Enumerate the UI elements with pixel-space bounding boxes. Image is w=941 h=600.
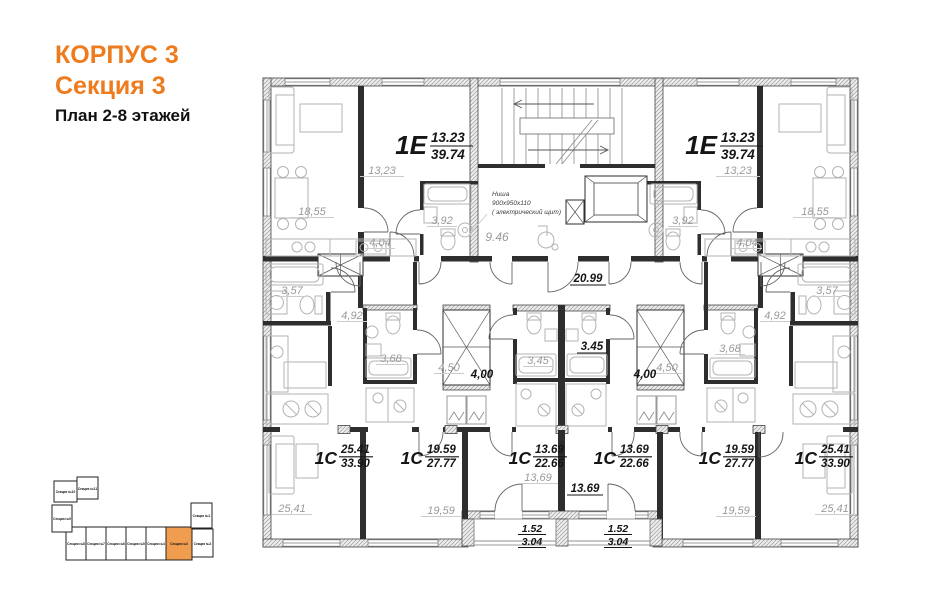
sink-icon — [366, 344, 381, 356]
room-area-label: 4,50 — [656, 362, 678, 374]
toilet-icon — [799, 296, 821, 314]
apartment-total-area: 33.90 — [341, 458, 370, 470]
minimap-section-label: Секция №7 — [87, 542, 105, 546]
balcony-area-num: 1.52 — [522, 523, 543, 535]
apartment-living-area: 13.69 — [535, 444, 564, 456]
toilet-icon — [582, 313, 596, 334]
window — [851, 168, 857, 216]
room-area-label: 13.69 — [571, 483, 600, 495]
lobby-area-label: 9.46 — [485, 230, 509, 244]
room-area-label: 4,00 — [633, 369, 657, 381]
kitchen-counter — [266, 239, 416, 256]
room-area-label: 3,68 — [380, 353, 402, 365]
room-area-label: 25,41 — [820, 503, 849, 515]
window — [522, 512, 549, 518]
elevator-icon — [585, 176, 647, 222]
apartment-living-area: 19.59 — [427, 444, 456, 456]
balcony-area-den: 3.04 — [522, 536, 543, 548]
sofa-icon — [269, 436, 294, 494]
apartment-type: 1С — [795, 448, 818, 468]
apartment-label-bottom-4: 1С 13.69 22.66 — [594, 444, 652, 470]
corridor-shaft-left — [318, 254, 363, 276]
apartment-total-area: 22.66 — [619, 458, 649, 470]
minimap: Секция №8 Секция №7 Секция №6 Секция №5 … — [52, 477, 213, 560]
water-heater-icon — [743, 326, 755, 338]
apartment-living-area: 13.23 — [721, 130, 755, 145]
room-area-label: 4,50 — [438, 362, 460, 374]
minimap-section-label: Секция №9 — [53, 517, 71, 521]
apartment-label-bottom-5: 1С 19.59 27.77 — [699, 444, 757, 470]
toilet-icon — [527, 313, 541, 334]
room-area-label: 3.45 — [581, 341, 604, 353]
apartment-living-area: 13.69 — [620, 444, 649, 456]
room-area-label: 4,04 — [369, 237, 390, 249]
window — [500, 79, 620, 85]
stove-icon — [800, 401, 838, 417]
sink-icon — [566, 329, 578, 341]
room-area-label: 4,04 — [736, 237, 757, 249]
apartment-living-area: 13.23 — [431, 130, 465, 145]
room-area-label: 13,23 — [724, 165, 752, 177]
sofa-icon — [827, 87, 852, 153]
corridor-shaft-right — [758, 254, 803, 276]
apartment-type: 1С — [594, 448, 617, 468]
room-area-label: 3,57 — [816, 285, 838, 297]
stove-icon — [394, 400, 406, 412]
room-area-label: 18,55 — [801, 206, 829, 218]
room-area-label: 18,55 — [298, 206, 326, 218]
kitchen-counter — [705, 239, 855, 256]
apartment-total-area: 27.77 — [724, 458, 754, 470]
apartment-living-area: 25.41 — [820, 444, 850, 456]
staircase — [502, 88, 622, 164]
apartment-total-area: 33.90 — [821, 458, 850, 470]
window — [851, 336, 857, 420]
toilet-icon — [441, 229, 455, 250]
floor-plan-page: КОРПУС 3 Секция 3 План 2-8 этажей — [0, 0, 941, 600]
kitchen-counter — [366, 388, 414, 422]
stove-icon — [283, 401, 321, 417]
duct-shaft — [566, 200, 584, 224]
niche-note-line1: Ниша — [492, 191, 510, 198]
apartment-living-area: 19.59 — [725, 444, 754, 456]
apartment-total-area: 39.74 — [431, 147, 465, 162]
window — [697, 79, 739, 85]
apartment-total-area: 22.66 — [534, 458, 564, 470]
room-area-label: 13,69 — [524, 472, 552, 484]
window — [285, 79, 330, 85]
balcony-area-label-right: 1.52 3.04 — [604, 523, 632, 548]
niche-note-line3: ( электрический щит) — [492, 208, 561, 216]
balcony-area-label-left: 1.52 3.04 — [518, 523, 546, 548]
minimap-section-label: Секция №3 — [170, 542, 188, 546]
bathtub-icon — [567, 354, 607, 376]
apartment-type: 1С — [699, 448, 722, 468]
apartment-total-area: 27.77 — [426, 458, 456, 470]
apartment-type: 1С — [509, 448, 532, 468]
stove-icon — [538, 404, 550, 416]
dining-table-icon — [813, 167, 846, 230]
window — [791, 79, 836, 85]
room-area-label: 4,92 — [341, 310, 362, 322]
kitchen-counter — [566, 384, 606, 426]
minimap-section-label: Секция №11 — [78, 487, 97, 491]
window — [480, 512, 495, 518]
sofa-icon — [269, 87, 294, 153]
apartment-label-bottom-1: 1С 25.41 33.90 — [315, 444, 373, 470]
window — [283, 540, 340, 546]
apartment-label-bottom-2: 1С 19.59 27.77 — [401, 444, 459, 470]
toilet-icon — [721, 313, 735, 334]
apartment-type: 1С — [315, 448, 338, 468]
window — [635, 512, 648, 518]
window — [264, 168, 270, 216]
room-area-label: 19,59 — [722, 505, 750, 517]
sink-icon — [545, 329, 557, 341]
room-area-label: 13,23 — [368, 165, 396, 177]
window — [683, 540, 753, 546]
dining-table-icon — [275, 167, 308, 230]
kitchen-counter — [516, 384, 556, 426]
coffee-table-icon — [300, 104, 342, 132]
niche-note-line2: 900х950х110 — [492, 200, 531, 207]
window — [781, 540, 838, 546]
kitchen-counter — [707, 388, 755, 422]
niche-note: Ниша 900х950х110 ( электрический щит) — [492, 191, 561, 216]
coffee-table-icon — [779, 104, 821, 132]
kitchen-counter — [266, 336, 328, 424]
apartment-label-bottom-6: 1С 25.41 33.90 — [795, 444, 853, 470]
apartment-label-top-right: 1Е 13.23 39.74 — [685, 130, 763, 162]
window — [264, 336, 270, 420]
room-area-label: 3,57 — [281, 285, 303, 297]
room-area-label: 3,68 — [719, 343, 741, 355]
kitchen-counter — [793, 336, 855, 424]
bathtub-icon — [424, 184, 471, 204]
minimap-section-label: Секция №5 — [127, 542, 145, 546]
room-area-label: 3,92 — [431, 215, 452, 227]
window — [579, 512, 607, 518]
stove-icon — [715, 400, 727, 412]
water-heater-icon — [366, 326, 378, 338]
balconies — [462, 519, 662, 546]
corridor-area-label: 20.99 — [573, 273, 603, 285]
apartment-living-area: 25.41 — [340, 444, 370, 456]
room-area-label: 25,41 — [277, 503, 306, 515]
minimap-section-label: Секция №4 — [147, 542, 165, 546]
minimap-section-label: Секция №2 — [194, 542, 212, 546]
apartment-label-top-left: 1Е 13.23 39.74 — [395, 130, 473, 162]
apartment-total-area: 39.74 — [721, 147, 755, 162]
toilet-icon — [666, 229, 680, 250]
bathtub-icon — [266, 264, 323, 285]
bathtub-icon — [798, 264, 855, 285]
window — [382, 79, 424, 85]
minimap-section-label: Секция №8 — [67, 542, 85, 546]
toilet-icon — [386, 313, 400, 334]
apartment-type: 1Е — [685, 130, 717, 160]
room-area-label: 3,92 — [672, 215, 693, 227]
room-area-label: 19,59 — [427, 505, 455, 517]
toilet-icon — [300, 296, 322, 314]
wheelchair-icon — [538, 226, 558, 250]
room-area-label: 4,92 — [764, 310, 785, 322]
apartment-type: 1Е — [395, 130, 427, 160]
minimap-section-label: Секция №6 — [107, 542, 125, 546]
window — [368, 540, 438, 546]
balcony-area-num: 1.52 — [608, 523, 629, 535]
floor-plan-drawing: 1Е 13.23 39.74 1Е 13.23 39.74 1С 25.41 3… — [0, 0, 941, 600]
bathtub-icon — [710, 358, 755, 378]
room-area-label: 4,00 — [470, 369, 494, 381]
room-area-label: 3,45 — [527, 355, 549, 367]
minimap-section-label: Секция №1 — [193, 514, 211, 518]
apartment-type: 1С — [401, 448, 424, 468]
minimap-section-label: Секция №10 — [56, 490, 76, 494]
apartment-label-bottom-3: 1С 13.69 22.66 — [509, 444, 567, 470]
stove-icon — [572, 404, 584, 416]
balcony-area-den: 3.04 — [608, 536, 629, 548]
